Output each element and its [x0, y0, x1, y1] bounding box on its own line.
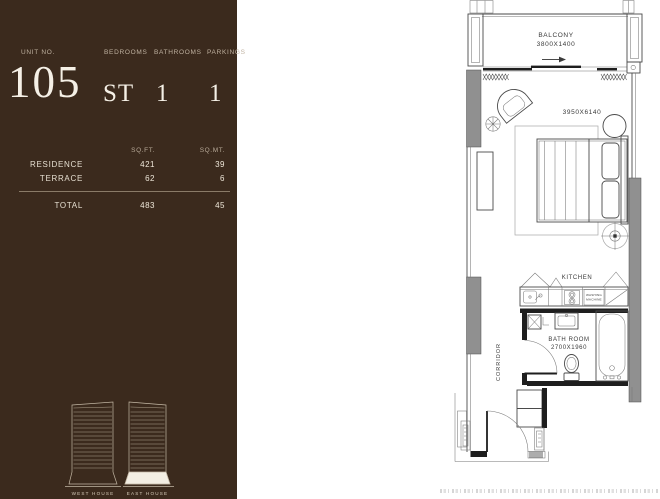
room-dimension: 3950X6140 [563, 109, 602, 116]
floorplan-sheet: UNIT NO. BEDROOMS BATHROOMS PARKINGS 105… [0, 0, 660, 499]
west-house-label: WEST HOUSE [72, 491, 115, 496]
washing-machine-label-line1: WASHING [586, 293, 602, 297]
table-divider [19, 191, 230, 192]
direction-arrow-icon [542, 57, 566, 63]
corner-column-marker [627, 62, 640, 73]
bathrooms-label: BATHROOMS [154, 49, 202, 56]
washing-machine-label-line2: MACHINE [586, 298, 602, 302]
bedrooms-label: BEDROOMS [104, 49, 148, 56]
residence-sqmt: 39 [140, 160, 225, 169]
vanity-sink [555, 313, 578, 329]
stove [565, 291, 580, 305]
dresser [477, 152, 493, 210]
entry-wall [471, 451, 488, 457]
bathroom-dimension: 2700X1960 [551, 345, 587, 351]
kitchen-label: KITCHEN [562, 275, 593, 281]
floorplan-drawing: BALCONY 3800X1400 [237, 0, 660, 499]
threshold [528, 452, 545, 459]
armchair [491, 83, 533, 123]
insulation-hatch [483, 74, 627, 80]
balcony: BALCONY 3800X1400 [468, 14, 642, 73]
bedroom: 3950X6140 [477, 83, 629, 250]
tower-diagrams: WEST HOUSE EAST HOUSE [57, 396, 183, 497]
kitchen-sink [524, 291, 543, 303]
corner-cabinet [606, 290, 627, 305]
west-tower-icon [65, 402, 121, 487]
vent-shaft [528, 315, 541, 329]
bedside-table [603, 115, 626, 138]
shaft-box-right [535, 428, 545, 450]
corridor: CORRIDOR [461, 343, 547, 458]
bathroom: BATH ROOM 2700X1960 [520, 309, 628, 387]
east-house-label: EAST HOUSE [127, 491, 169, 496]
total-sqmt: 45 [140, 201, 225, 210]
east-tower-icon [123, 402, 174, 487]
balcony-label: BALCONY [538, 32, 573, 39]
sliding-door [483, 66, 627, 71]
plant-icon [486, 117, 500, 131]
corridor-label: CORRIDOR [496, 343, 502, 381]
balcony-dimension: 3800X1400 [537, 41, 576, 48]
kitchen: KITCHEN WASHING [520, 272, 628, 306]
sidebar: UNIT NO. BEDROOMS BATHROOMS PARKINGS 105… [0, 0, 237, 499]
bedrooms-value: ST [103, 81, 134, 106]
bed [537, 136, 628, 224]
bathrooms-value: 1 [156, 81, 170, 106]
ceiling-light-icon [601, 222, 629, 250]
toilet [564, 355, 579, 381]
bathroom-label: BATH ROOM [548, 337, 589, 343]
walls [455, 70, 641, 462]
bathtub [596, 311, 628, 381]
shaft-box-left [461, 421, 470, 450]
wardrobe [517, 390, 542, 427]
sqmt-header: SQ.MT. [140, 147, 225, 154]
unit-number: 105 [8, 60, 82, 105]
parkings-value: 1 [209, 81, 223, 106]
terrace-sqmt: 6 [140, 174, 225, 183]
washing-machine: WASHING MACHINE [584, 290, 604, 306]
highlighted-floor [125, 472, 170, 484]
upper-balcony-partitions [470, 1, 634, 14]
unit-no-label: UNIT NO. [21, 49, 55, 56]
disclaimer-text [440, 489, 658, 493]
entry-door [487, 411, 528, 452]
